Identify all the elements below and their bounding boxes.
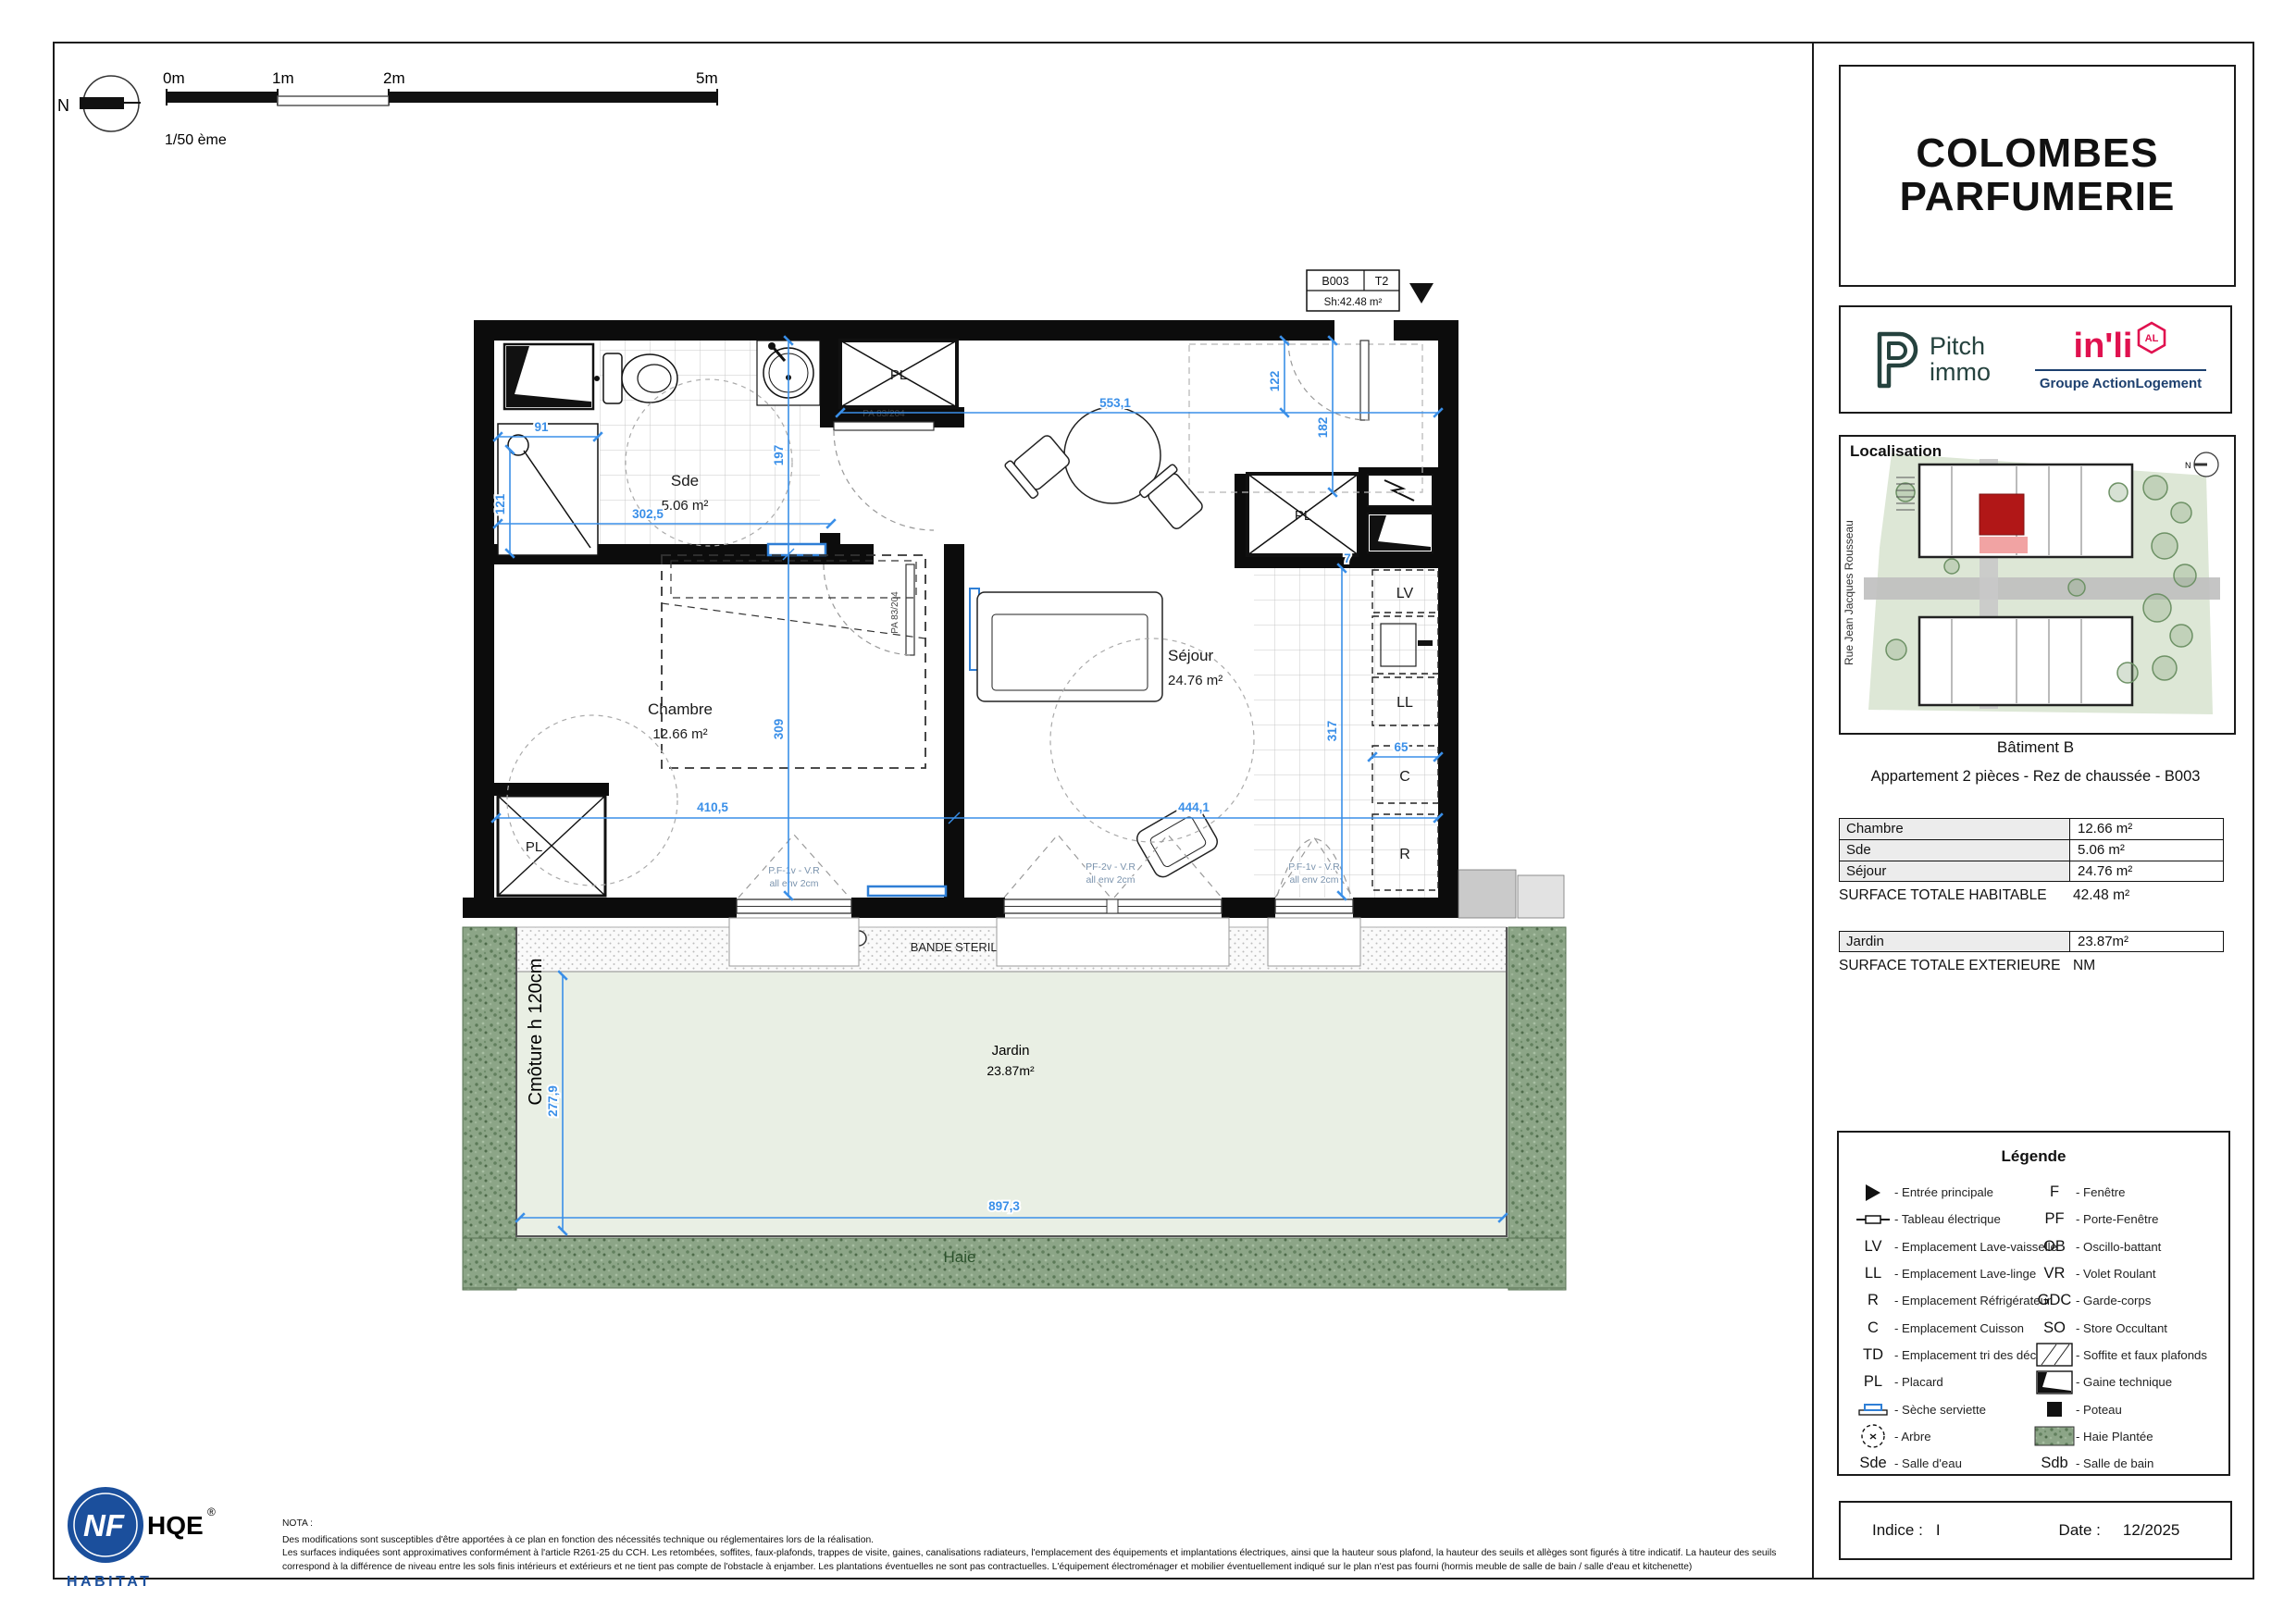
surface-ext-label: SURFACE TOTALE EXTERIEURE — [1839, 958, 2060, 973]
entrance-arrow-icon — [1409, 283, 1433, 304]
building-name: Bâtiment B — [1839, 738, 2232, 757]
svg-text:309: 309 — [772, 719, 786, 740]
table-row: Séjour 24.76 m² — [1839, 861, 2224, 882]
table-row: Sde 5.06 m² — [1839, 839, 2224, 861]
technical-block — [1359, 467, 1442, 560]
svg-text:LL: LL — [1396, 695, 1413, 711]
svg-text:Sh:42.48 m²: Sh:42.48 m² — [1324, 297, 1383, 308]
entry-closet: PL — [1247, 474, 1359, 555]
svg-text:HQE: HQE — [147, 1511, 204, 1540]
unit-tag: B003 T2 Sh:42.48 m² — [1307, 270, 1433, 311]
svg-text:2m: 2m — [383, 69, 405, 87]
surface-total-value: 42.48 m² — [2073, 885, 2129, 907]
svg-text:410,5: 410,5 — [697, 800, 728, 814]
tree-icon — [1859, 1422, 1887, 1450]
svg-text:Cmôture h 120cm: Cmôture h 120cm — [526, 959, 546, 1106]
soffite-icon — [2036, 1343, 2073, 1367]
localisation-box: Localisation Rue Jean Jacques Rousseau — [1839, 435, 2236, 735]
site-map: N — [1841, 437, 2230, 729]
indice-label: Indice : — [1872, 1521, 1923, 1540]
surface-total-row: SURFACE TOTALE HABITABLE 42.48 m² — [1839, 885, 2224, 907]
svg-text:182: 182 — [1316, 417, 1330, 439]
pitch-immo-logo: Pitch immo — [1872, 329, 1991, 390]
sidebar-divider — [1812, 42, 1814, 1580]
apartment-description: Appartement 2 pièces - Rez de chaussée -… — [1839, 768, 2232, 786]
pitch-logo-text1: Pitch — [1930, 334, 1991, 360]
svg-text:HABITAT: HABITAT — [67, 1574, 152, 1590]
symbol-sde: Sde — [1852, 1455, 1894, 1472]
symbol-so: SO — [2033, 1319, 2076, 1337]
kitchen-floor-tiles — [1254, 568, 1438, 898]
room-label: Jardin — [1839, 931, 2070, 952]
inli-logo-subtext: Groupe ActionLogement — [2040, 376, 2202, 391]
unit-terrace — [1980, 537, 2028, 553]
highlighted-unit — [1980, 494, 2024, 535]
svg-text:Séjour: Séjour — [1168, 647, 1213, 664]
nota-text: NOTA : Des modifications sont susceptibl… — [282, 1518, 1800, 1574]
indice-value: I — [1936, 1521, 1941, 1540]
svg-text:5m: 5m — [696, 69, 718, 87]
svg-text:7: 7 — [1344, 551, 1351, 565]
hall-closet: PL — [840, 341, 957, 407]
floor-plan-sheet: N 0m 1m 2m 5m 1/50 ème — [0, 0, 2296, 1623]
svg-text:91: 91 — [534, 420, 549, 434]
svg-text:all env 2cm: all env 2cm — [1086, 874, 1135, 886]
svg-text:all env 2cm: all env 2cm — [769, 878, 818, 889]
room-label: Séjour — [1839, 861, 2070, 882]
revision-box: Indice : I Date : 12/2025 — [1839, 1501, 2232, 1560]
towel-dryer-icon — [768, 544, 825, 555]
inli-logo-text: in'li — [2074, 328, 2133, 364]
chair-icon — [1004, 430, 1074, 499]
legend-title: Légende — [1839, 1147, 2228, 1166]
svg-text:NF: NF — [83, 1508, 125, 1542]
street-name: Rue Jean Jacques Rousseau — [1843, 487, 1855, 700]
svg-text:PL: PL — [1295, 508, 1311, 524]
svg-text:24.76 m²: 24.76 m² — [1168, 673, 1222, 688]
north-arrow: N — [57, 76, 141, 131]
svg-text:PL: PL — [890, 367, 907, 383]
nota-title: NOTA : — [282, 1518, 1800, 1531]
svg-text:121: 121 — [493, 493, 507, 514]
svg-text:N: N — [2185, 461, 2191, 470]
symbol-f: F — [2033, 1183, 2076, 1201]
svg-text:®: ® — [207, 1505, 216, 1518]
poteau-icon — [2047, 1402, 2062, 1417]
date-value: 12/2025 — [2123, 1521, 2179, 1540]
localisation-label: Localisation — [1850, 442, 1942, 461]
project-title-line1: COLOMBES — [1916, 132, 2158, 176]
radiator-icon — [868, 886, 946, 896]
toilet-icon — [603, 353, 622, 403]
legend-left-column: - Entrée principale - Tableau électrique… — [1852, 1179, 2033, 1477]
svg-text:B003: B003 — [1322, 275, 1348, 288]
svg-text:1m: 1m — [272, 69, 294, 87]
room-label: Chambre — [1839, 818, 2070, 839]
symbol-lv: LV — [1852, 1238, 1894, 1256]
svg-text:23.87m²: 23.87m² — [987, 1063, 1035, 1078]
symbol-ob: OB — [2033, 1238, 2076, 1256]
svg-text:P.F-1v - V.R: P.F-1v - V.R — [1288, 861, 1340, 873]
pitch-immo-icon — [1872, 329, 1920, 390]
nota-line: correspond à la différence de niveau ent… — [282, 1561, 1800, 1575]
room-label: Sde — [1839, 839, 2070, 861]
svg-text:all env 2cm: all env 2cm — [1289, 874, 1338, 886]
surface-total-label: SURFACE TOTALE HABITABLE — [1839, 887, 2047, 903]
room-value: 24.76 m² — [2070, 861, 2224, 882]
symbol-pf: PF — [2033, 1210, 2076, 1228]
svg-text:BANDE STERILE: BANDE STERILE — [911, 940, 1006, 954]
svg-text:444,1: 444,1 — [1178, 800, 1210, 814]
svg-text:277,9: 277,9 — [546, 1085, 560, 1117]
table-row: Chambre 12.66 m² — [1839, 818, 2224, 839]
svg-text:C: C — [1399, 769, 1410, 785]
svg-text:PF-2v - V.R: PF-2v - V.R — [1086, 861, 1136, 873]
symbol-r: R — [1852, 1292, 1894, 1309]
sejour-room — [977, 407, 1254, 880]
legend-box: Légende - Entrée principale - Tableau él… — [1837, 1131, 2230, 1476]
table-row: Jardin 23.87m² — [1839, 931, 2224, 952]
symbol-sdb: Sdb — [2033, 1455, 2076, 1472]
surface-table: Chambre 12.66 m² Sde 5.06 m² Séjour 24.7… — [1839, 818, 2224, 977]
scale-bar: 0m 1m 2m 5m 1/50 ème — [163, 69, 718, 148]
surface-ext-value: NM — [2073, 955, 2095, 977]
pitch-logo-text2: immo — [1930, 360, 1991, 386]
hedge-icon — [2034, 1426, 2075, 1446]
svg-text:12.66 m²: 12.66 m² — [652, 726, 707, 742]
inli-divider — [2035, 369, 2206, 371]
entrance-arrow-icon — [1866, 1184, 1880, 1201]
nota-line: Des modifications sont susceptibles d'êt… — [282, 1534, 1800, 1548]
electrical-panel-icon — [1856, 1214, 1890, 1225]
svg-text:317: 317 — [1325, 721, 1339, 742]
symbol-c: C — [1852, 1319, 1894, 1337]
room-value: 23.87m² — [2070, 931, 2224, 952]
nota-line: Les surfaces indiquées sont approximativ… — [282, 1547, 1800, 1561]
svg-text:122: 122 — [1268, 371, 1282, 392]
svg-text:Haie: Haie — [944, 1248, 976, 1266]
svg-text:0m: 0m — [163, 69, 185, 87]
svg-text:N: N — [57, 96, 69, 115]
shower-icon — [498, 424, 598, 555]
logos-box: Pitch immo in'li AL Groupe ActionLogemen… — [1839, 305, 2232, 414]
inli-al-badge-icon: AL — [2136, 321, 2167, 354]
legend-right-column: F- Fenêtre PF- Porte-Fenêtre OB- Oscillo… — [2033, 1179, 2218, 1477]
exterior-slab-2 — [1518, 875, 1564, 918]
svg-text:P.F-1v - V.R: P.F-1v - V.R — [768, 865, 820, 876]
towel-dryer-icon — [1857, 1402, 1889, 1417]
svg-text:PA 83/204: PA 83/204 — [863, 409, 905, 419]
svg-text:Chambre: Chambre — [648, 700, 713, 718]
room-value: 12.66 m² — [2070, 818, 2224, 839]
svg-text:1/50 ème: 1/50 ème — [165, 132, 227, 148]
svg-text:LV: LV — [1396, 586, 1414, 601]
surface-ext-row: SURFACE TOTALE EXTERIEURE NM — [1839, 955, 2224, 977]
svg-text:T2: T2 — [1375, 275, 1389, 288]
floor-plan-drawing: N 0m 1m 2m 5m 1/50 ème — [53, 42, 1812, 1580]
gaine-technique-icon — [2036, 1370, 2073, 1394]
svg-text:AL: AL — [2145, 333, 2159, 344]
svg-text:302,5: 302,5 — [632, 507, 664, 521]
svg-text:897,3: 897,3 — [988, 1199, 1020, 1213]
svg-text:65: 65 — [1394, 740, 1409, 754]
date-label: Date : — [2059, 1521, 2101, 1540]
svg-text:553,1: 553,1 — [1099, 396, 1131, 410]
project-title-line2: PARFUMERIE — [1900, 176, 2176, 219]
project-title-box: COLOMBES PARFUMERIE — [1839, 65, 2236, 287]
nf-hqe-habitat-logo: NF HQE ® HABITAT — [57, 1479, 261, 1599]
svg-text:197: 197 — [772, 445, 786, 466]
svg-text:PL: PL — [526, 839, 542, 855]
inli-logo: in'li AL Groupe ActionLogement — [2035, 328, 2206, 391]
svg-text:R: R — [1399, 847, 1410, 862]
symbol-td: TD — [1852, 1346, 1894, 1364]
symbol-pl: PL — [1852, 1373, 1894, 1391]
symbol-vr: VR — [2033, 1265, 2076, 1282]
garden: BANDE STERILE Jardin 23.87m² Haie Cmôtur… — [463, 927, 1566, 1290]
symbol-gdc: GDC — [2033, 1292, 2076, 1309]
room-value: 5.06 m² — [2070, 839, 2224, 861]
svg-text:Sde: Sde — [671, 472, 699, 489]
exterior-slab — [1458, 870, 1516, 918]
svg-text:Jardin: Jardin — [992, 1043, 1030, 1059]
symbol-ll: LL — [1852, 1265, 1894, 1282]
svg-text:5.06 m²: 5.06 m² — [662, 498, 709, 514]
